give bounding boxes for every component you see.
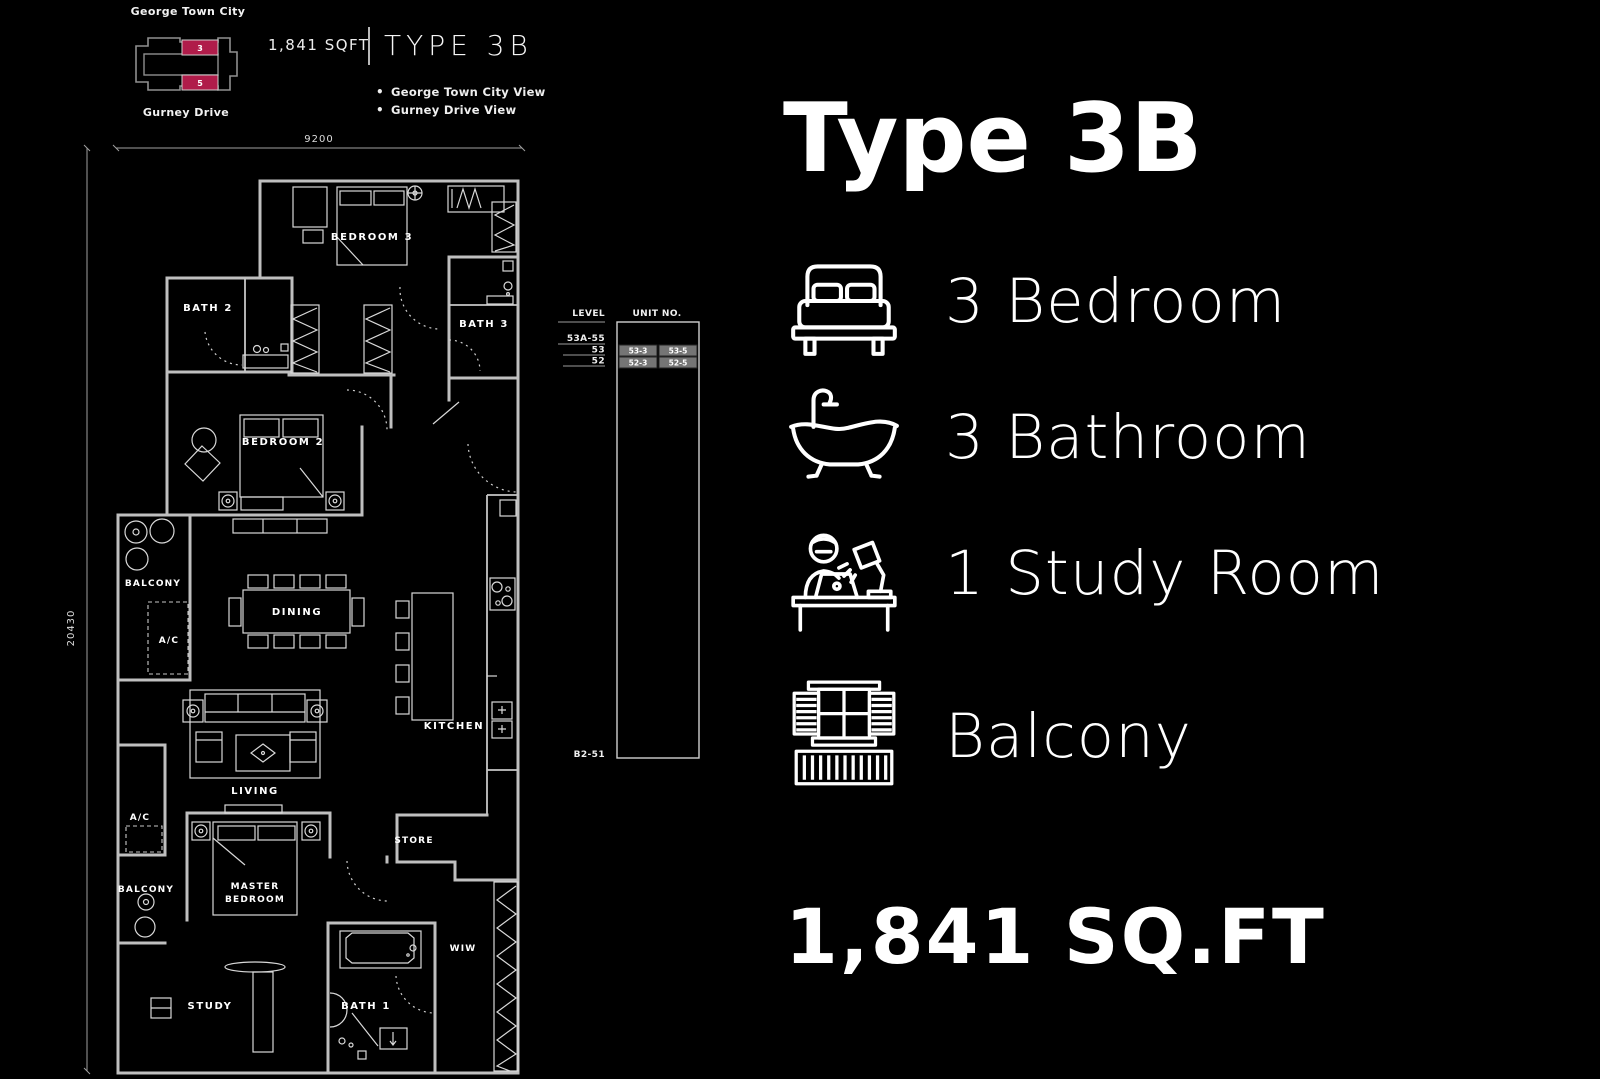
entry-door-leaf <box>433 402 459 424</box>
unit-cell-label: 53-5 <box>669 347 688 356</box>
view-item-label: Gurney Drive View <box>391 103 516 117</box>
unit-cell-label: 52-3 <box>629 359 648 368</box>
ac-unit-outline <box>126 826 162 852</box>
site-plan-unit3-label: 3 <box>197 44 203 53</box>
room-label-balcony-lower: BALCONY <box>118 885 174 895</box>
dimension-lines: 9200 20430 <box>66 134 525 1074</box>
kitchen-island <box>396 593 453 720</box>
room-label-dining: DINING <box>272 607 322 618</box>
wardrobes <box>291 305 392 373</box>
ceiling-fan-icon <box>408 186 422 200</box>
feature-label: 3 Bedroom <box>945 266 1286 337</box>
room-label-bath1: BATH 1 <box>341 1001 391 1012</box>
feature-label: 1 Study Room <box>945 538 1384 609</box>
balcony-upper-items <box>125 519 188 674</box>
header-area-text: 1,841 SQFT <box>268 36 370 54</box>
panel-title: Type 3B <box>783 92 1202 187</box>
level-row-label: 53A-55 <box>567 334 605 344</box>
room-label-balcony-upper: BALCONY <box>125 579 181 589</box>
ceiling-fan-icon <box>195 825 207 837</box>
room-label-living: LIVING <box>231 786 279 797</box>
site-plan-core <box>144 54 218 75</box>
ceiling-fan-icon <box>329 495 341 507</box>
balcony-lower-items <box>126 826 162 937</box>
site-plan-top-label: George Town City <box>98 5 278 18</box>
feature-row-bedroom: 3 Bedroom <box>783 240 1286 362</box>
ceiling-fan-icon <box>222 495 234 507</box>
floorplan-slide: George Town City 3 5 Gurney Drive 1,841 … <box>0 0 1600 1079</box>
kitchen-appliances <box>487 500 516 738</box>
view-list: • George Town City View • Gurney Drive V… <box>376 85 546 117</box>
room-label-master-2: BEDROOM <box>225 895 285 905</box>
view-item-label: George Town City View <box>391 85 546 99</box>
walls <box>118 181 518 1073</box>
feature-row-bathroom: 3 Bathroom <box>783 376 1311 498</box>
room-label-study: STUDY <box>188 1001 233 1012</box>
room-label-kitchen: KITCHEN <box>424 721 484 732</box>
feature-row-balcony: Balcony <box>783 675 1192 797</box>
room-label-bedroom2: BEDROOM 2 <box>242 437 324 448</box>
dim-top-label: 9200 <box>304 134 333 145</box>
panel-area-text: 1,841 SQ.FT <box>785 892 1326 981</box>
unit-cell-label: 53-3 <box>629 347 648 356</box>
header-divider <box>368 27 370 65</box>
bullet-icon: • <box>376 86 384 98</box>
bed-icon <box>783 240 905 362</box>
view-item: • Gurney Drive View <box>376 103 546 117</box>
header-type-label: TYPE 3B <box>384 29 533 62</box>
room-label-bath3: BATH 3 <box>459 319 509 330</box>
bath1-fixtures <box>330 931 421 1059</box>
site-plan-bottom-label: Gurney Drive <box>96 106 276 119</box>
wiw-wardrobe <box>494 882 518 1071</box>
unit-cell-label: 52-5 <box>669 359 688 368</box>
bath3-fixtures <box>487 261 513 304</box>
bullet-icon: • <box>376 104 384 116</box>
room-label-ac-lower: A/C <box>130 813 150 823</box>
level-row-label: 53 <box>592 346 605 356</box>
site-plan-key: 3 5 <box>124 26 246 104</box>
ceiling-fan-icon <box>311 705 323 717</box>
dim-left-label: 20430 <box>66 610 77 647</box>
bathtub-icon <box>783 376 905 498</box>
room-label-wiw: WIW <box>450 944 477 954</box>
study-desk-icon <box>783 512 905 634</box>
ceiling-fan-icon <box>187 705 199 717</box>
level-stack-table: LEVEL UNIT NO. 53A-55 53 52 53-3 53-5 52… <box>540 280 710 770</box>
ceiling-fan-icon <box>305 825 317 837</box>
feature-label: 3 Bathroom <box>945 402 1311 473</box>
room-label-bath2: BATH 2 <box>183 303 233 314</box>
level-header: LEVEL <box>572 309 605 319</box>
site-plan-unit5-label: 5 <box>197 79 203 88</box>
feature-row-study: 1 Study Room <box>783 512 1384 634</box>
feature-label: Balcony <box>945 701 1192 772</box>
bedroom3-furniture <box>293 186 516 265</box>
basement-label: B2-51 <box>574 750 605 760</box>
unit-header: UNIT NO. <box>632 309 681 319</box>
room-label-bedroom3: BEDROOM 3 <box>331 232 413 243</box>
room-label-ac-upper: A/C <box>159 636 179 646</box>
bath2-fixtures <box>243 344 288 368</box>
floor-plan: 9200 20430 <box>55 130 535 1079</box>
level-row-label: 52 <box>592 357 605 367</box>
balcony-icon <box>783 675 905 797</box>
tower-elevation-outline <box>617 322 699 758</box>
room-label-master-1: MASTER <box>231 882 280 892</box>
room-label-store: STORE <box>394 836 433 846</box>
view-item: • George Town City View <box>376 85 546 99</box>
